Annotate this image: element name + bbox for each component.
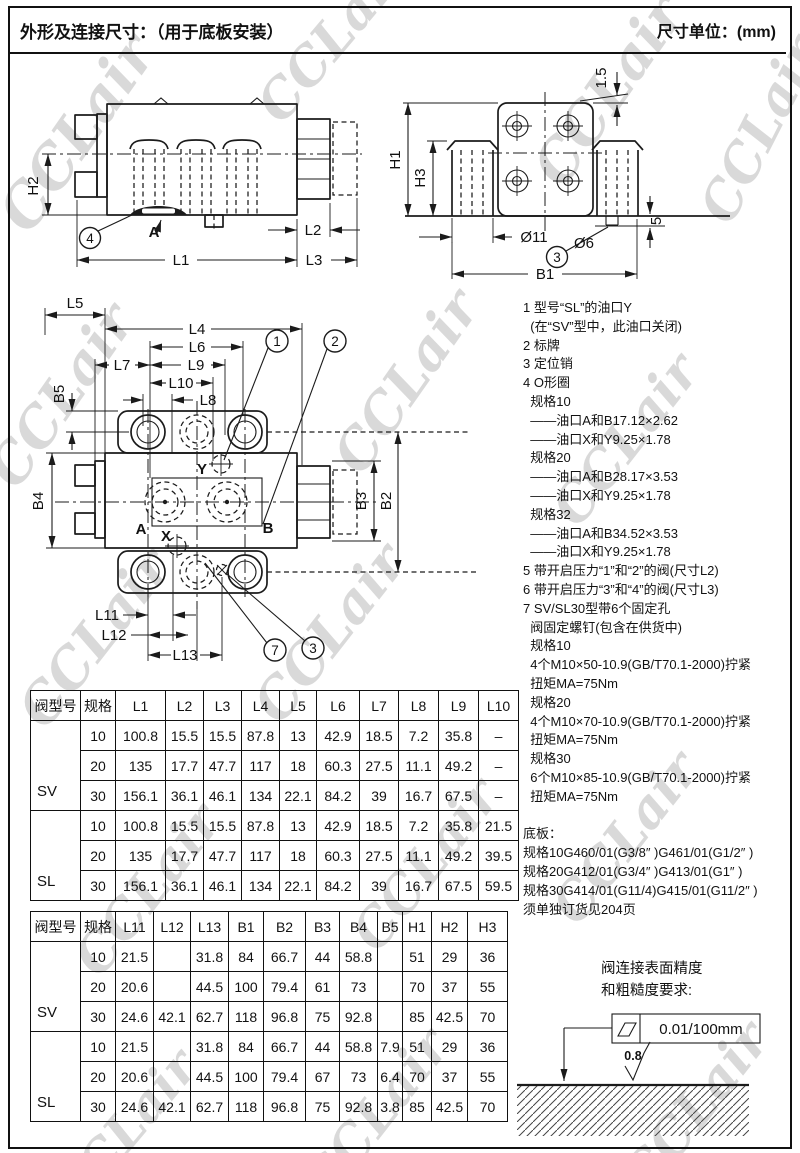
table-header-cell: L7 xyxy=(360,691,399,721)
note-line: 规格20 xyxy=(523,694,791,713)
table-value-cell xyxy=(154,972,191,1002)
table-value-cell: 36.1 xyxy=(166,781,204,811)
table-value-cell: 37 xyxy=(432,972,468,1002)
note-line: 2 标牌 xyxy=(523,337,791,356)
table-header-cell: L11 xyxy=(116,912,154,942)
table-header-cell: L3 xyxy=(204,691,242,721)
table-value-cell: 67.5 xyxy=(439,781,479,811)
table-row: SV10100.815.515.587.81342.918.57.235.8– xyxy=(31,721,519,751)
unit-label: 尺寸单位：(mm) xyxy=(657,18,776,42)
table-header-cell: L12 xyxy=(154,912,191,942)
table-value-cell: 60.3 xyxy=(317,841,360,871)
table-value-cell xyxy=(154,942,191,972)
dimension-table: 阀型号规格L1L2L3L4L5L6L7L8L9L10SV10100.815.51… xyxy=(30,690,519,901)
table-value-cell: 51 xyxy=(403,942,432,972)
table-value-cell: 135 xyxy=(116,841,166,871)
dim-label-h1: H1 xyxy=(387,150,404,169)
note-line: 规格20 xyxy=(523,449,791,468)
table-value-cell: 18.5 xyxy=(360,721,399,751)
note-line: 1 型号“SL”的油口Y xyxy=(523,299,791,318)
table-value-cell: 22.1 xyxy=(280,781,317,811)
port-letters: A B Y X xyxy=(136,461,274,545)
table-header-cell: L13 xyxy=(191,912,229,942)
table-header-cell: L8 xyxy=(399,691,439,721)
table-value-cell: – xyxy=(479,721,519,751)
callout-3-label: 3 xyxy=(309,641,317,656)
table-value-cell: 75 xyxy=(306,1092,340,1122)
table-header-cell: B1 xyxy=(229,912,264,942)
table-row: 3024.642.162.711896.87592.88542.570 xyxy=(31,1002,508,1032)
page-header: 外形及连接尺寸：（用于底板安装） 尺寸单位：(mm) xyxy=(10,8,786,54)
table-value-cell: 79.4 xyxy=(264,1062,306,1092)
table-value-cell: 46.1 xyxy=(204,781,242,811)
dim-label-h2: H2 xyxy=(25,176,42,195)
note-line: 4 O形圈 xyxy=(523,374,791,393)
dimensions: L5 L4 L6 L7 L9 L10 L8 xyxy=(30,295,398,664)
surface-hatching xyxy=(517,1086,749,1136)
table-value-cell: 58.8 xyxy=(340,1032,378,1062)
table-value-cell: 22.1 xyxy=(280,871,317,901)
valve-model-cell: SV xyxy=(31,942,81,1032)
table-value-cell: 30 xyxy=(81,781,116,811)
note-line: 扭矩MA=75Nm xyxy=(523,675,791,694)
table-value-cell: 61 xyxy=(306,972,340,1002)
table-value-cell: 36.1 xyxy=(166,871,204,901)
dim-label-l9: L9 xyxy=(188,357,205,374)
table-value-cell: 39 xyxy=(360,871,399,901)
table-value-cell: 27.5 xyxy=(360,841,399,871)
table-row: 3024.642.162.711896.87592.83.88542.570 xyxy=(31,1092,508,1122)
table-value-cell: 18 xyxy=(280,841,317,871)
note-line: ——油口X和Y9.25×1.78 xyxy=(523,431,791,450)
table-value-cell: 13 xyxy=(280,811,317,841)
table-header-cell: B2 xyxy=(264,912,306,942)
table-value-cell: 44 xyxy=(306,1032,340,1062)
table-row: 30156.136.146.113422.184.23916.767.5– xyxy=(31,781,519,811)
dimension-table: 阀型号规格L11L12L13B1B2B3B4B5H1H2H3SV1021.531… xyxy=(30,911,508,1122)
callouts: 1 2 7 3 xyxy=(205,330,346,661)
table-value-cell: 84 xyxy=(229,1032,264,1062)
table-value-cell: 30 xyxy=(81,1092,116,1122)
table-row: 30156.136.146.113422.184.23916.767.559.5 xyxy=(31,871,519,901)
table-value-cell: 20.6 xyxy=(116,972,154,1002)
note-line: 6个M10×85-10.9(GB/T70.1-2000)拧紧 xyxy=(523,769,791,788)
note-line: ——油口X和Y9.25×1.78 xyxy=(523,487,791,506)
table-value-cell: 21.5 xyxy=(479,811,519,841)
table-header-cell: L2 xyxy=(166,691,204,721)
table-value-cell: 21.5 xyxy=(116,942,154,972)
table-value-cell: 49.2 xyxy=(439,841,479,871)
roughness-value: 0.8 xyxy=(624,1049,641,1063)
table-value-cell: 13 xyxy=(280,721,317,751)
table-value-cell: 44.5 xyxy=(191,972,229,1002)
note-line: 规格10G460/01(G3/8″ )G461/01(G1/2″ ) xyxy=(523,844,791,863)
table-header-cell: L6 xyxy=(317,691,360,721)
table-value-cell: 60.3 xyxy=(317,751,360,781)
note-line: 规格10 xyxy=(523,637,791,656)
surface-finish-drawing: 0.01/100mm 0.8 xyxy=(517,938,792,1143)
notes-list: 1 型号“SL”的油口Y (在“SV”型中，此油口关闭)2 标牌3 定位销4 O… xyxy=(523,299,791,919)
table-header-cell: L9 xyxy=(439,691,479,721)
table-value-cell: 73 xyxy=(340,972,378,1002)
table-value-cell: 7.2 xyxy=(399,811,439,841)
note-line: 扭矩MA=75Nm xyxy=(523,788,791,807)
table-value-cell: 118 xyxy=(229,1002,264,1032)
table-value-cell: 39 xyxy=(360,781,399,811)
dim-label-d11: Ø11 xyxy=(520,229,547,246)
table-value-cell: 100 xyxy=(229,1062,264,1092)
table-value-cell: 62.7 xyxy=(191,1092,229,1122)
table-value-cell: 20 xyxy=(81,751,116,781)
table-value-cell: 55 xyxy=(468,1062,508,1092)
table-value-cell: 11.1 xyxy=(399,751,439,781)
table-value-cell: 96.8 xyxy=(264,1092,306,1122)
port-y-label: Y xyxy=(197,461,207,478)
table-value-cell: 16.7 xyxy=(399,871,439,901)
note-line: 规格20G412/01(G3/4″ )G413/01(G1″ ) xyxy=(523,863,791,882)
valve-model-cell: SL xyxy=(31,1032,81,1122)
port-a-slot xyxy=(142,209,175,214)
table-header-cell: 规格 xyxy=(81,691,116,721)
dim-label-d6: Ø6 xyxy=(574,235,594,252)
table-value-cell: 24.6 xyxy=(116,1002,154,1032)
table-value-cell: 27.5 xyxy=(360,751,399,781)
table-row: SL10100.815.515.587.81342.918.57.235.821… xyxy=(31,811,519,841)
table-value-cell: 67 xyxy=(306,1062,340,1092)
table-value-cell: 15.5 xyxy=(166,811,204,841)
table-value-cell: 96.8 xyxy=(264,1002,306,1032)
table-value-cell: 79.4 xyxy=(264,972,306,1002)
note-line: 6 带开启压力“3”和“4”的阀(尺寸L3) xyxy=(523,581,791,600)
table-value-cell: 84.2 xyxy=(317,781,360,811)
table-header-cell: 规格 xyxy=(81,912,116,942)
table-value-cell: 36 xyxy=(468,1032,508,1062)
table-row: 2013517.747.71171860.327.511.149.239.5 xyxy=(31,841,519,871)
dim-label-b4: B4 xyxy=(30,492,47,510)
table-value-cell: 7.9 xyxy=(378,1032,403,1062)
table-value-cell: 49.2 xyxy=(439,751,479,781)
table-value-cell: 18 xyxy=(280,751,317,781)
table-header-cell: 阀型号 xyxy=(31,691,81,721)
dim-label-l4: L4 xyxy=(189,321,206,338)
note-line: ——油口A和B34.52×3.53 xyxy=(523,525,791,544)
table-value-cell: 20 xyxy=(81,841,116,871)
table-value-cell: 18.5 xyxy=(360,811,399,841)
callout-1-label: 1 xyxy=(273,334,281,349)
table-value-cell: 17.7 xyxy=(166,841,204,871)
dim-label-1-5: 1.5 xyxy=(593,68,610,89)
table-value-cell: 29 xyxy=(432,942,468,972)
table-value-cell: 20 xyxy=(81,1062,116,1092)
table-value-cell: 66.7 xyxy=(264,942,306,972)
dim-label-l7: L7 xyxy=(114,357,131,374)
note-line: 5 带开启压力“1”和“2”的阀(尺寸L2) xyxy=(523,562,791,581)
callout-4-label: 4 xyxy=(86,231,94,246)
valve-model-cell: SL xyxy=(31,811,81,901)
table-value-cell: 117 xyxy=(242,751,280,781)
table-value-cell: 92.8 xyxy=(340,1002,378,1032)
table-value-cell: 44 xyxy=(306,942,340,972)
dim-label-b1: B1 xyxy=(536,266,554,283)
table-value-cell: 70 xyxy=(403,1062,432,1092)
dim-label-l10: L10 xyxy=(168,375,193,392)
table-header-cell: 阀型号 xyxy=(31,912,81,942)
table-value-cell: 17.7 xyxy=(166,751,204,781)
callout-3-label: 3 xyxy=(553,250,561,265)
table-header-cell: H3 xyxy=(468,912,508,942)
table-value-cell: 70 xyxy=(468,1092,508,1122)
table-value-cell: – xyxy=(479,751,519,781)
table-value-cell: 24.6 xyxy=(116,1092,154,1122)
table-header-cell: H1 xyxy=(403,912,432,942)
table-value-cell: 3.8 xyxy=(378,1092,403,1122)
table-value-cell: 6.4 xyxy=(378,1062,403,1092)
table-value-cell: 73 xyxy=(340,1062,378,1092)
table-row: 2013517.747.71171860.327.511.149.2– xyxy=(31,751,519,781)
note-line: 须单独订货见204页 xyxy=(523,901,791,920)
table-row: 2020.644.510079.467736.4703755 xyxy=(31,1062,508,1092)
table-value-cell: 31.8 xyxy=(191,1032,229,1062)
table-value-cell: 134 xyxy=(242,871,280,901)
dim-label-l11: L11 xyxy=(95,607,119,624)
table-value-cell: 10 xyxy=(81,942,116,972)
table-value-cell: 36 xyxy=(468,942,508,972)
table-value-cell: 46.1 xyxy=(204,871,242,901)
note-line: ——油口A和B17.12×2.62 xyxy=(523,412,791,431)
dim-label-l5: L5 xyxy=(67,295,84,312)
valve-model-cell: SV xyxy=(31,721,81,811)
table-header-cell: L5 xyxy=(280,691,317,721)
table-value-cell: 117 xyxy=(242,841,280,871)
table-value-cell: 11.1 xyxy=(399,841,439,871)
table-value-cell: 100.8 xyxy=(116,721,166,751)
table-value-cell: 42.1 xyxy=(154,1092,191,1122)
table-value-cell: 42.9 xyxy=(317,811,360,841)
table-value-cell: 156.1 xyxy=(116,781,166,811)
table-row: SV1021.531.88466.74458.8512936 xyxy=(31,942,508,972)
table-value-cell xyxy=(154,1032,191,1062)
table-value-cell: 92.8 xyxy=(340,1092,378,1122)
dim-label-l13: L13 xyxy=(172,647,197,664)
table-value-cell: 29 xyxy=(432,1032,468,1062)
table-header-cell: H2 xyxy=(432,912,468,942)
table-value-cell: 42.5 xyxy=(432,1092,468,1122)
table-value-cell: 85 xyxy=(403,1002,432,1032)
table-value-cell xyxy=(154,1062,191,1092)
dim-label-l2: L2 xyxy=(305,222,322,239)
table-value-cell: 15.5 xyxy=(166,721,204,751)
table-header-cell: L4 xyxy=(242,691,280,721)
table-value-cell: – xyxy=(479,781,519,811)
flatness-value: 0.01/100mm xyxy=(659,1021,742,1038)
table-value-cell xyxy=(378,942,403,972)
callout-2-label: 2 xyxy=(331,334,339,349)
table-value-cell: 100 xyxy=(229,972,264,1002)
table-value-cell: 47.7 xyxy=(204,841,242,871)
side-view-drawing: H2 L1 L2 L3 A 4 xyxy=(30,62,390,292)
dimension-table-l: 阀型号规格L1L2L3L4L5L6L7L8L9L10SV10100.815.51… xyxy=(30,690,519,901)
table-value-cell: 70 xyxy=(468,1002,508,1032)
note-line: 底板： xyxy=(523,825,791,844)
dim-label-l6: L6 xyxy=(189,339,206,356)
note-line: 规格32 xyxy=(523,506,791,525)
table-value-cell: 156.1 xyxy=(116,871,166,901)
table-value-cell: 51 xyxy=(403,1032,432,1062)
table-value-cell: 87.8 xyxy=(242,721,280,751)
table-value-cell: 134 xyxy=(242,781,280,811)
end-view-drawing: 1.5 H1 H3 Ø11 Ø6 3 5 B1 xyxy=(395,56,740,291)
table-value-cell: 70 xyxy=(403,972,432,1002)
table-value-cell: 39.5 xyxy=(479,841,519,871)
table-value-cell: 30 xyxy=(81,1002,116,1032)
callout-7-label: 7 xyxy=(271,643,279,658)
table-value-cell: 135 xyxy=(116,751,166,781)
table-header-cell: B4 xyxy=(340,912,378,942)
table-value-cell: 58.8 xyxy=(340,942,378,972)
table-row: 2020.644.510079.46173703755 xyxy=(31,972,508,1002)
table-header-cell: L1 xyxy=(116,691,166,721)
dim-label-b5: B5 xyxy=(51,385,68,403)
page-title: 外形及连接尺寸：（用于底板安装） xyxy=(20,18,284,43)
dimension-table-bh: 阀型号规格L11L12L13B1B2B3B4B5H1H2H3SV1021.531… xyxy=(30,911,508,1122)
note-line xyxy=(523,807,791,826)
table-value-cell: 84 xyxy=(229,942,264,972)
dim-label-l8: L8 xyxy=(200,392,217,409)
table-value-cell: 84.2 xyxy=(317,871,360,901)
dim-label-5: 5 xyxy=(648,217,665,225)
dim-label-l1: L1 xyxy=(173,252,190,269)
table-value-cell: 31.8 xyxy=(191,942,229,972)
table-value-cell xyxy=(378,972,403,1002)
table-value-cell: 44.5 xyxy=(191,1062,229,1092)
note-line: 扭矩MA=75Nm xyxy=(523,731,791,750)
note-line: 7 SV/SL30型带6个固定孔 xyxy=(523,600,791,619)
note-line: ——油口X和Y9.25×1.78 xyxy=(523,543,791,562)
table-value-cell: 15.5 xyxy=(204,721,242,751)
note-line: 规格10 xyxy=(523,393,791,412)
note-line: 4个M10×70-10.9(GB/T70.1-2000)拧紧 xyxy=(523,713,791,732)
dim-label-b3: B3 xyxy=(353,492,370,510)
table-value-cell: 85 xyxy=(403,1092,432,1122)
port-a-label: A xyxy=(136,521,147,538)
table-value-cell: 42.9 xyxy=(317,721,360,751)
note-line: 规格30 xyxy=(523,750,791,769)
note-line: 规格30G414/01(G11/4)G415/01(G11/2″ ) xyxy=(523,882,791,901)
note-line: ——油口A和B28.17×3.53 xyxy=(523,468,791,487)
table-header-cell: B3 xyxy=(306,912,340,942)
table-row: SL1021.531.88466.74458.87.9512936 xyxy=(31,1032,508,1062)
flatness-icon xyxy=(618,1023,636,1036)
table-value-cell: 66.7 xyxy=(264,1032,306,1062)
note-line: 4个M10×50-10.9(GB/T70.1-2000)拧紧 xyxy=(523,656,791,675)
table-value-cell: 10 xyxy=(81,811,116,841)
table-value-cell: 100.8 xyxy=(116,811,166,841)
top-view-drawing: A B Y X L5 L4 L6 L7 L9 xyxy=(25,293,510,678)
dim-label-h3: H3 xyxy=(412,168,429,187)
table-header-cell: L10 xyxy=(479,691,519,721)
table-value-cell: 30 xyxy=(81,871,116,901)
hidden-lines xyxy=(461,150,628,216)
note-line: 3 定位销 xyxy=(523,355,791,374)
note-line: (在“SV”型中，此油口关闭) xyxy=(523,318,791,337)
table-value-cell: 7.2 xyxy=(399,721,439,751)
table-value-cell: 87.8 xyxy=(242,811,280,841)
table-value-cell: 10 xyxy=(81,721,116,751)
table-value-cell: 42.5 xyxy=(432,1002,468,1032)
table-value-cell: 62.7 xyxy=(191,1002,229,1032)
table-value-cell: 59.5 xyxy=(479,871,519,901)
table-value-cell: 67.5 xyxy=(439,871,479,901)
table-value-cell: 47.7 xyxy=(204,751,242,781)
table-value-cell: 75 xyxy=(306,1002,340,1032)
table-value-cell xyxy=(378,1002,403,1032)
table-value-cell: 21.5 xyxy=(116,1032,154,1062)
table-value-cell: 16.7 xyxy=(399,781,439,811)
port-a-label: A xyxy=(149,224,160,241)
table-value-cell: 42.1 xyxy=(154,1002,191,1032)
port-b-label: B xyxy=(263,520,274,537)
catalog-page: 外形及连接尺寸：（用于底板安装） 尺寸单位：(mm) CCLairCCLairC… xyxy=(0,0,800,1153)
table-value-cell: 10 xyxy=(81,1032,116,1062)
table-header-cell: B5 xyxy=(378,912,403,942)
table-value-cell: 15.5 xyxy=(204,811,242,841)
table-value-cell: 35.8 xyxy=(439,811,479,841)
dim-label-l12: L12 xyxy=(101,627,126,644)
dim-label-b2: B2 xyxy=(378,492,395,510)
table-value-cell: 55 xyxy=(468,972,508,1002)
dim-label-l3: L3 xyxy=(306,252,323,269)
table-value-cell: 37 xyxy=(432,1062,468,1092)
table-value-cell: 35.8 xyxy=(439,721,479,751)
port-x-label: X xyxy=(161,528,171,545)
note-line: 阀固定螺钉(包含在供货中) xyxy=(523,619,791,638)
table-value-cell: 20.6 xyxy=(116,1062,154,1092)
table-value-cell: 20 xyxy=(81,972,116,1002)
table-value-cell: 118 xyxy=(229,1092,264,1122)
